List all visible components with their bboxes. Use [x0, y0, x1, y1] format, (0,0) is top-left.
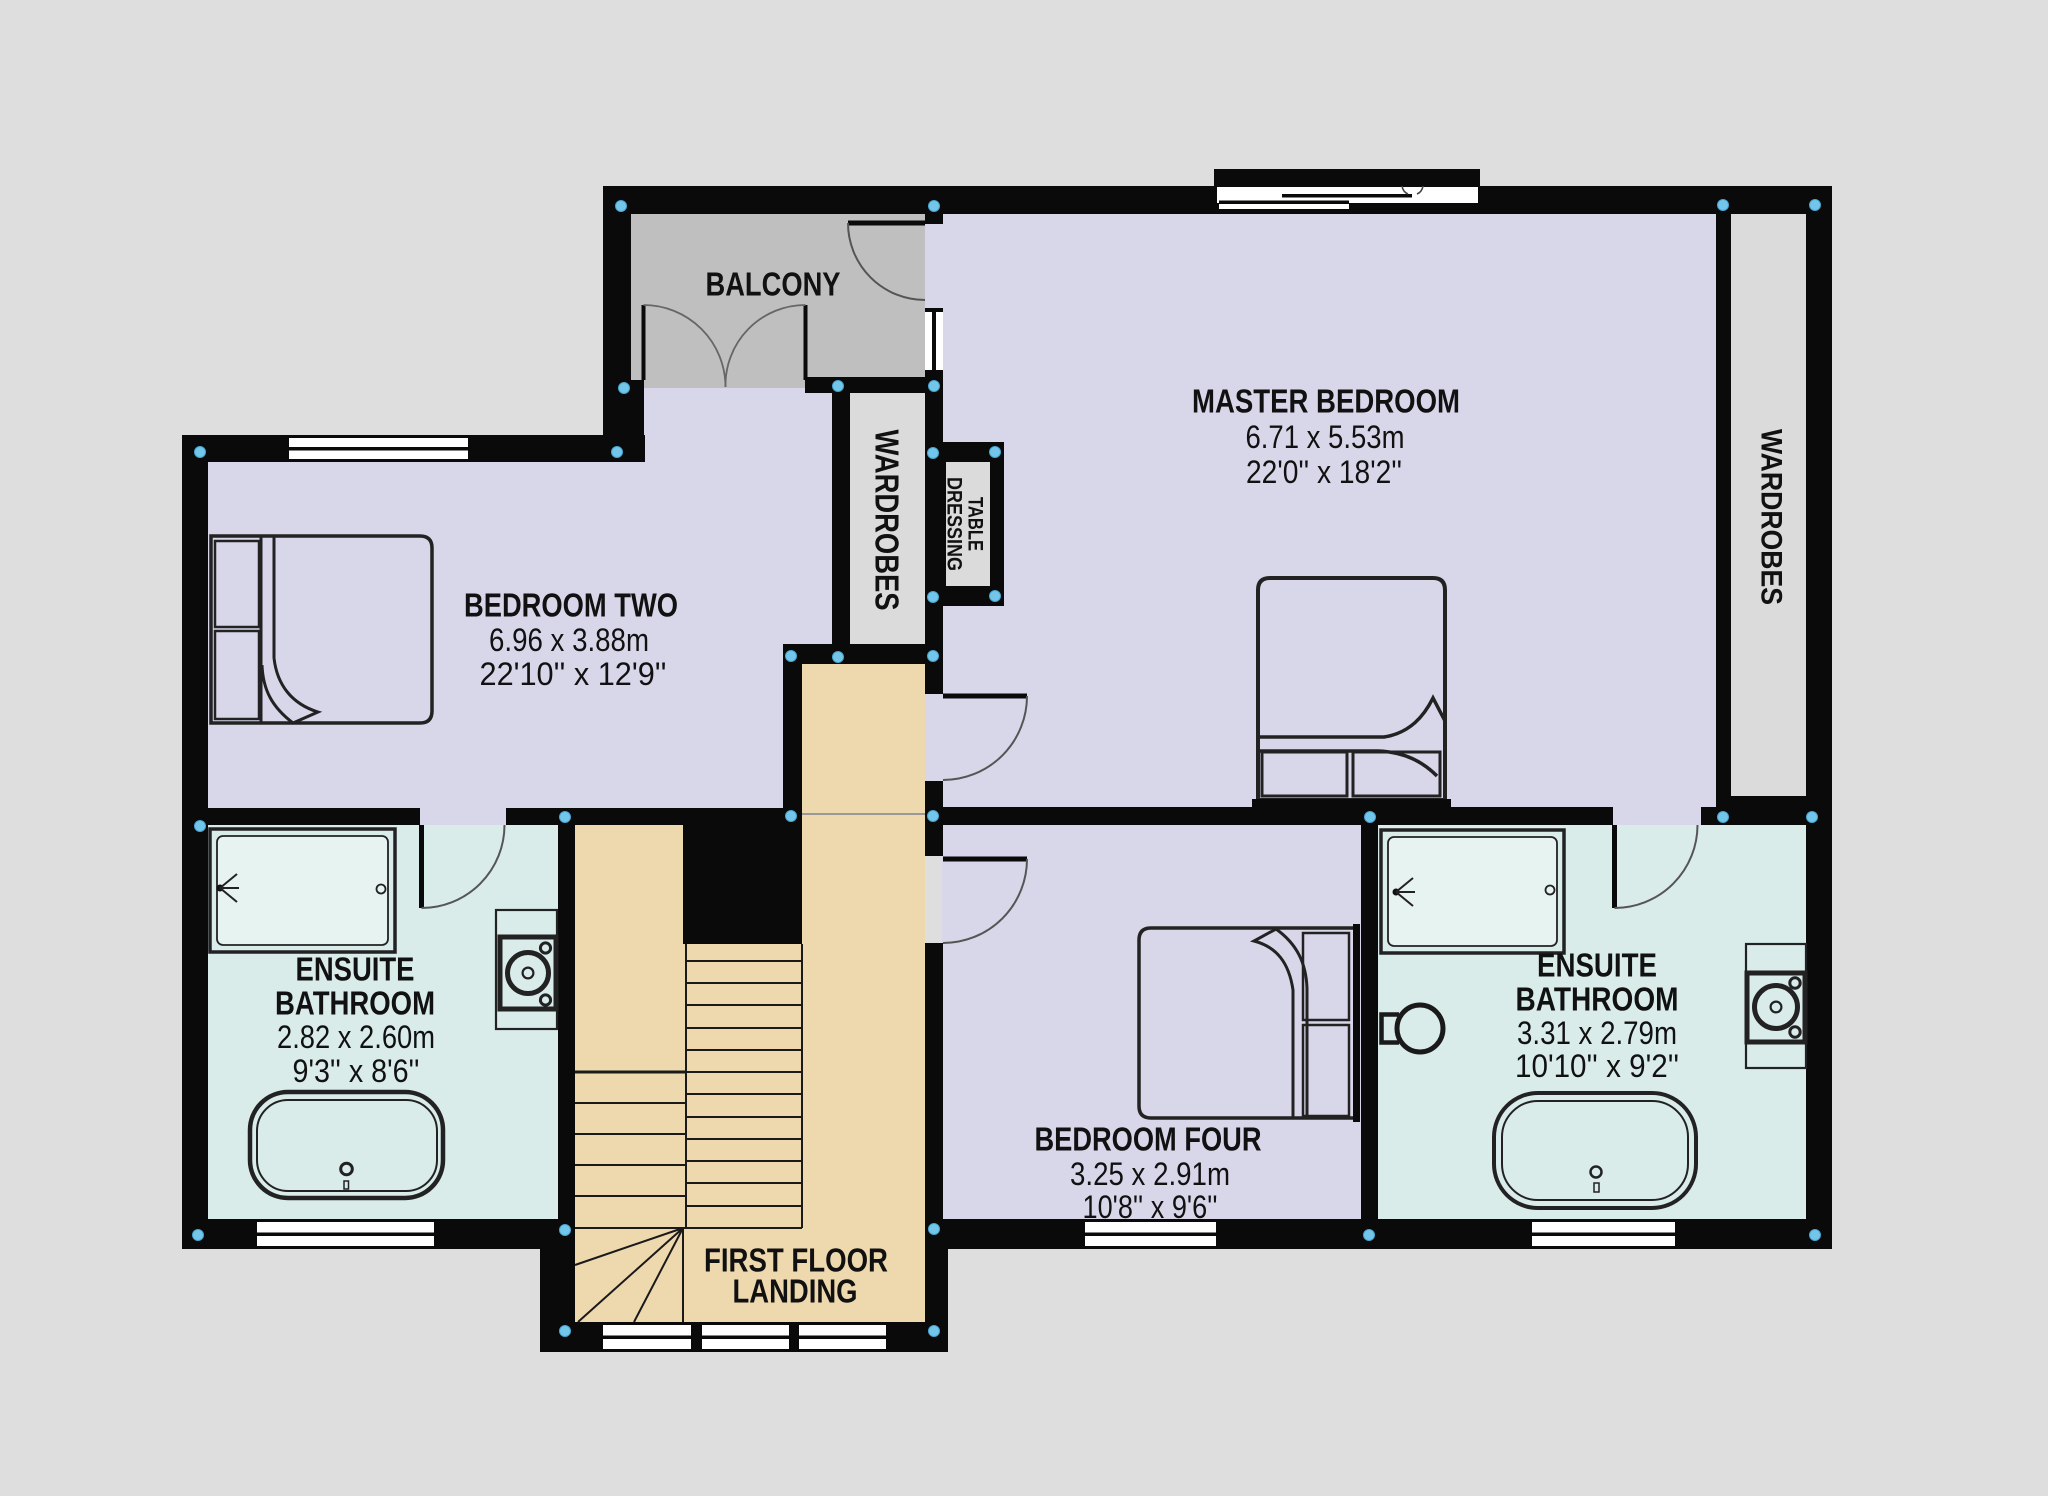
- svg-text:BATHROOM: BATHROOM: [1516, 981, 1679, 1018]
- svg-text:3.25 x 2.91m: 3.25 x 2.91m: [1070, 1156, 1230, 1192]
- svg-text:ENSUITE: ENSUITE: [1537, 947, 1657, 984]
- svg-text:2.82 x 2.60m: 2.82 x 2.60m: [277, 1019, 435, 1055]
- svg-text:BEDROOM TWO: BEDROOM TWO: [464, 587, 678, 624]
- svg-text:MASTER BEDROOM: MASTER BEDROOM: [1192, 383, 1460, 420]
- svg-text:BATHROOM: BATHROOM: [275, 985, 435, 1022]
- svg-text:BEDROOM FOUR: BEDROOM FOUR: [1035, 1121, 1262, 1158]
- svg-text:6.96 x 3.88m: 6.96 x 3.88m: [489, 622, 649, 658]
- svg-text:BALCONY: BALCONY: [706, 266, 841, 303]
- svg-text:WARDROBES: WARDROBES: [869, 430, 906, 611]
- svg-text:LANDING: LANDING: [733, 1273, 858, 1310]
- svg-text:3.31 x 2.79m: 3.31 x 2.79m: [1517, 1015, 1677, 1051]
- svg-text:22'0'' x 18'2'': 22'0'' x 18'2'': [1246, 454, 1402, 490]
- svg-text:6.71 x 5.53m: 6.71 x 5.53m: [1246, 419, 1405, 455]
- svg-text:22'10'' x 12'9'': 22'10'' x 12'9'': [480, 656, 667, 692]
- svg-text:10'8'' x 9'6'': 10'8'' x 9'6'': [1083, 1189, 1218, 1225]
- svg-text:WARDROBES: WARDROBES: [1755, 429, 1788, 605]
- svg-text:9'3'' x 8'6'': 9'3'' x 8'6'': [293, 1053, 420, 1089]
- svg-text:DRESSING: DRESSING: [943, 477, 966, 571]
- svg-text:10'10'' x 9'2'': 10'10'' x 9'2'': [1515, 1048, 1679, 1084]
- svg-text:TABLE: TABLE: [964, 497, 987, 551]
- svg-text:ENSUITE: ENSUITE: [296, 951, 415, 988]
